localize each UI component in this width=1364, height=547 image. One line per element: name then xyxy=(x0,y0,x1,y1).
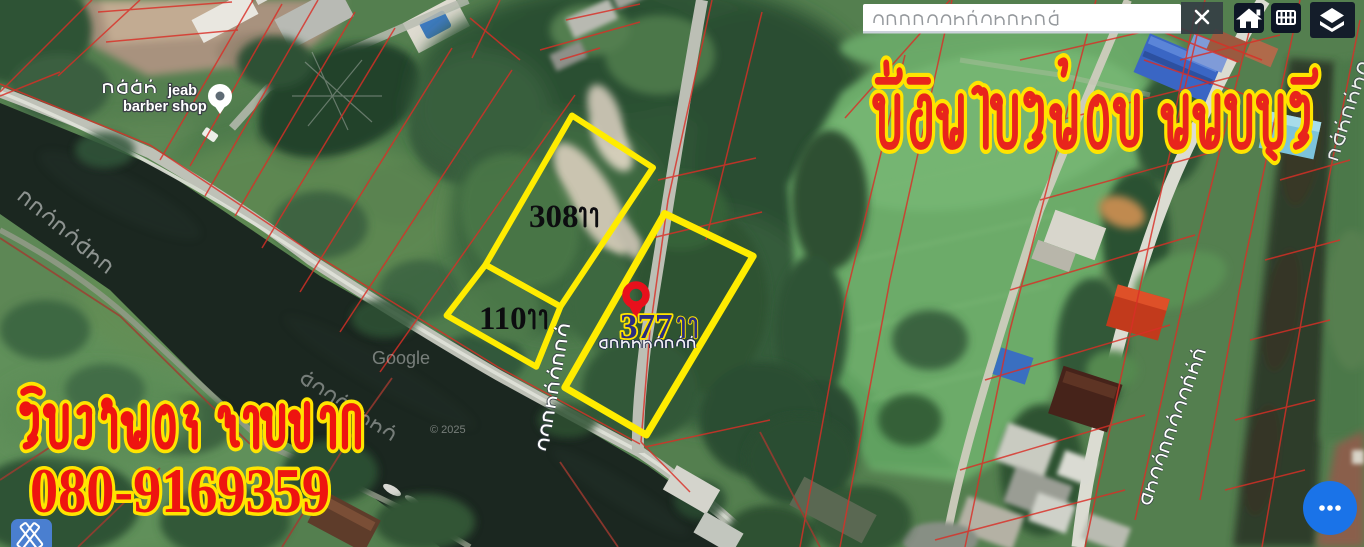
svg-text:080-9169359: 080-9169359 xyxy=(30,455,330,526)
svg-text:308: 308 xyxy=(529,199,579,235)
svg-text:© 2025: © 2025 xyxy=(430,424,466,436)
svg-text:barber shop: barber shop xyxy=(123,99,207,115)
svg-text:110: 110 xyxy=(479,301,527,337)
svg-text:Google: Google xyxy=(372,348,430,368)
svg-text:jeab: jeab xyxy=(167,83,197,99)
